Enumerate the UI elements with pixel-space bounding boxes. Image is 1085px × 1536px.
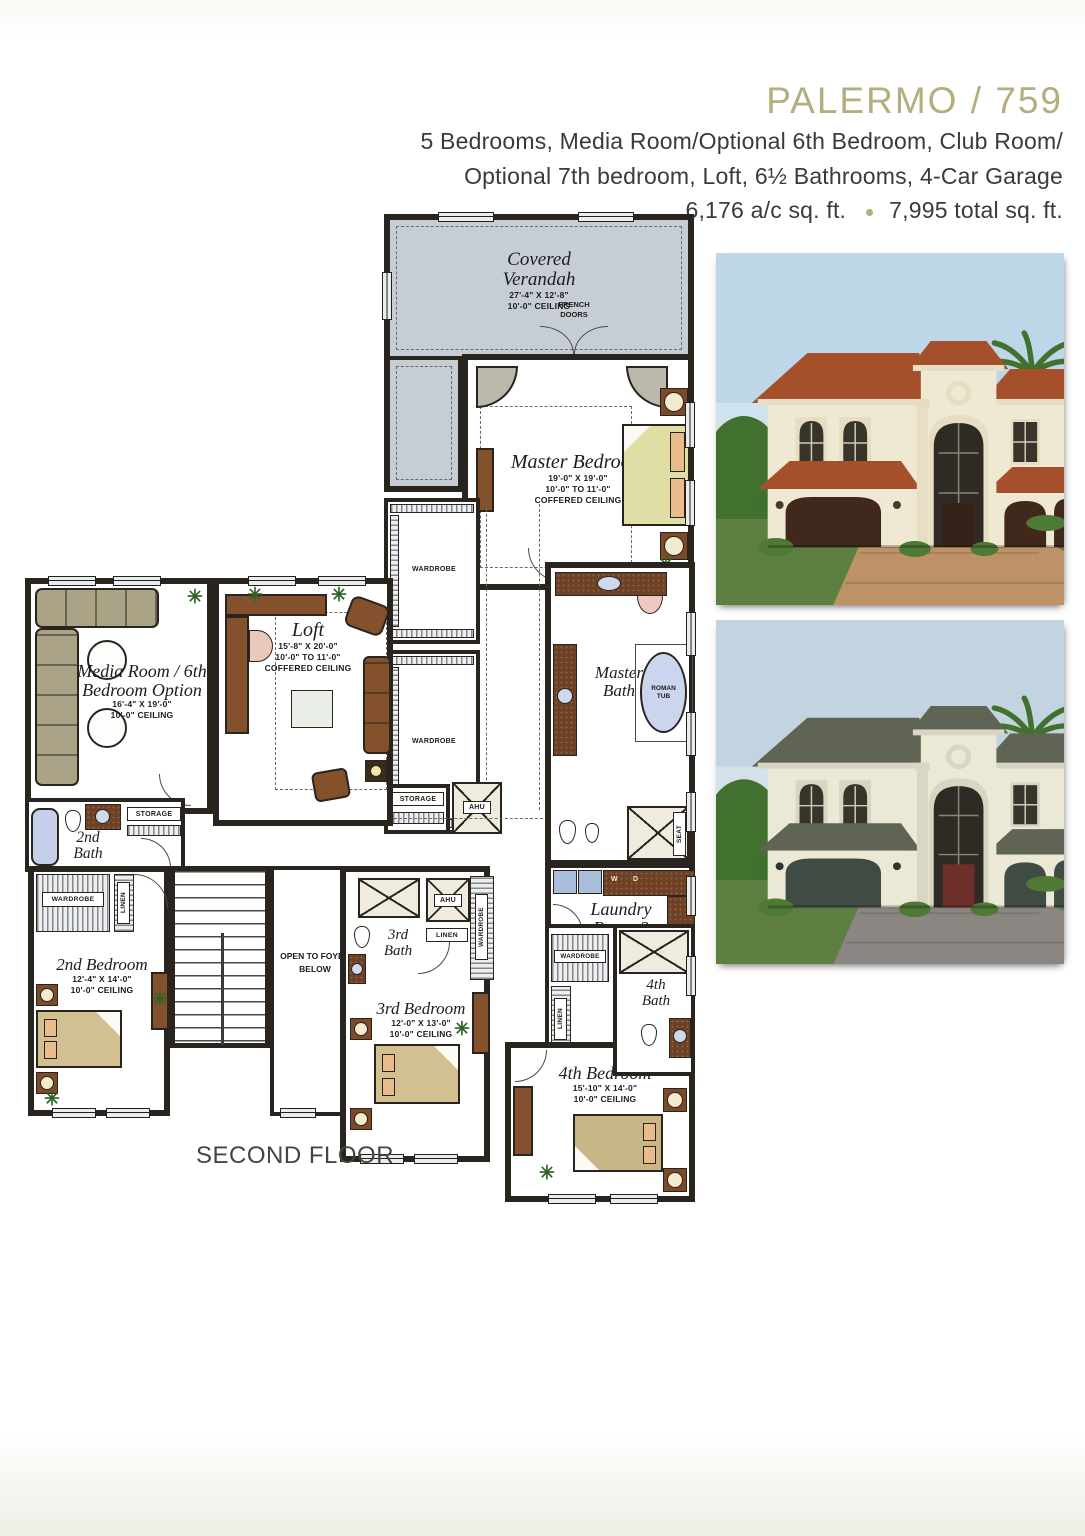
nightstand [36, 984, 58, 1006]
coffee-table [291, 690, 333, 728]
hatch [127, 825, 181, 836]
bath-2-name-1: 2nd [57, 830, 119, 846]
house-illustration [716, 253, 1064, 605]
verandah-name-2: Verandah [444, 270, 634, 290]
nightstand [350, 1108, 372, 1130]
lamp [370, 765, 382, 777]
plant-icon: ✳ [454, 1020, 470, 1039]
bath-2-label: 2nd Bath [57, 830, 119, 862]
window [686, 876, 696, 916]
pillow [670, 478, 685, 518]
bedroom-2-name: 2nd Bedroom [40, 956, 164, 974]
bedroom-3-name: 3rd Bedroom [362, 1000, 480, 1018]
nightstand [660, 388, 688, 416]
window [318, 576, 366, 586]
chair [311, 767, 352, 803]
window [686, 956, 696, 996]
ahu-unit: AHU [452, 782, 502, 834]
window [578, 212, 634, 222]
french-doors-line1: FRENCH [534, 300, 614, 310]
roman-tub-label-2: TUB [651, 693, 676, 701]
room-covered-verandah-wing [384, 360, 464, 492]
shower [358, 878, 420, 918]
pillow [382, 1078, 395, 1096]
wardrobe-label: WARDROBE [400, 562, 468, 576]
door-arc [418, 942, 450, 974]
bed [374, 1044, 460, 1104]
window [106, 1108, 150, 1118]
french-doors-label: FRENCH DOORS [534, 300, 614, 320]
closet-storage: STORAGE [384, 784, 450, 834]
bed-fold [624, 426, 650, 452]
hallway-dash [486, 504, 540, 810]
console [225, 616, 249, 734]
wardrobe-label: WARDROBE [42, 892, 104, 907]
door-arc [134, 874, 168, 908]
room-media: Media Room / 6th Bedroom Option 16'-4" X… [25, 578, 213, 814]
media-room-dims: 16'-4" X 19'-0" [75, 699, 209, 710]
bed-fold [434, 1046, 458, 1070]
loft-name: Loft [253, 620, 363, 641]
bed [573, 1114, 663, 1172]
bed-fold [575, 1146, 599, 1170]
shower [619, 930, 689, 974]
washer [553, 870, 577, 894]
master-bed [622, 424, 690, 526]
hatch [390, 629, 474, 638]
verandah-wing-dash [396, 366, 452, 480]
master-corner-fan-left [476, 366, 518, 408]
nightstand [663, 1088, 687, 1112]
sink [351, 963, 363, 975]
console [225, 594, 327, 616]
house-illustration [716, 620, 1064, 964]
seat-label: SEAT [673, 812, 686, 856]
loft-dims: 15'-8" X 20'-0" [253, 641, 363, 652]
staircase [170, 866, 270, 1048]
sink [95, 809, 110, 824]
plant-icon: ✳ [247, 586, 263, 605]
linen-label: LINEN [554, 998, 567, 1040]
bed-fold [96, 1012, 120, 1036]
plant-icon: ✳ [539, 1164, 555, 1183]
plan-specs-line-2: Optional 7th bedroom, Loft, 6½ Bathrooms… [464, 163, 1063, 190]
bathtub [31, 808, 59, 866]
window [113, 576, 161, 586]
ahu-unit: AHU [426, 878, 470, 922]
sofa [363, 656, 391, 754]
toilet [354, 926, 370, 948]
bedroom-4-dims: 15'-10" X 14'-0" [535, 1083, 675, 1094]
bedroom-2-label: 2nd Bedroom 12'-4" X 14'-0" 10'-0" CEILI… [40, 956, 164, 996]
loft-label: Loft 15'-8" X 20'-0" 10'-0" TO 11'-0" CO… [253, 620, 363, 674]
laundry-counter [603, 870, 695, 896]
storage-label: STORAGE [127, 807, 181, 821]
pillow [382, 1054, 395, 1072]
area-total: 7,995 total sq. ft. [889, 197, 1063, 224]
media-room-name-2: Bedroom Option [75, 681, 209, 700]
rendering-photo-contemporary [716, 620, 1064, 964]
makeup-basin [637, 596, 663, 614]
nightstand [663, 1168, 687, 1192]
window [610, 1194, 658, 1204]
area-ac: 6,176 a/c sq. ft. [685, 197, 846, 224]
window [382, 272, 392, 320]
closet-block-bedroom-4: WARDROBE LINEN [545, 924, 617, 1058]
bidet [585, 823, 599, 843]
stair-rail [221, 933, 224, 1045]
plant-icon: ✳ [152, 990, 168, 1009]
plan-specs-line-1: 5 Bedrooms, Media Room/Optional 6th Bedr… [420, 128, 1063, 155]
bath-2-name-2: Bath [57, 846, 119, 862]
window [686, 792, 696, 832]
hatch [390, 504, 474, 513]
plant-icon: ✳ [331, 586, 347, 605]
sectional-sofa [35, 588, 159, 628]
bedroom-2-dims: 12'-4" X 14'-0" [40, 974, 164, 985]
french-doors-line2: DOORS [534, 310, 614, 320]
room-master-bath: Master Bath ROMAN TUB SEAT [545, 562, 695, 866]
floor-plan: Covered Verandah 27'-4" X 12'-8" 10'-0" … [18, 212, 702, 1217]
lamp-table [365, 760, 387, 782]
room-bath-4: 4th Bath [613, 924, 695, 1076]
pillow [670, 432, 685, 472]
window [685, 480, 695, 526]
plan-title: PALERMO / 759 [766, 80, 1063, 122]
plant-icon: ✳ [44, 1090, 60, 1109]
roman-tub-label-1: ROMAN [651, 685, 676, 693]
closet-wardrobe-1: WARDROBE [384, 498, 480, 644]
window [248, 576, 296, 586]
door-arc [141, 838, 171, 868]
bath-4-label: 4th Bath [627, 978, 685, 1009]
linen-label: LINEN [426, 928, 468, 942]
toilet [559, 820, 576, 844]
sink [597, 576, 621, 591]
laundry-name-1: Laundry [567, 900, 675, 919]
media-room-name-1: Media Room / 6th [75, 662, 209, 681]
pillow [643, 1146, 656, 1164]
toilet [641, 1024, 657, 1046]
pillow [44, 1041, 57, 1059]
sink [557, 688, 573, 704]
media-room-label: Media Room / 6th Bedroom Option 16'-4" X… [75, 662, 209, 722]
window [686, 612, 696, 656]
loft-ceiling2: COFFERED CEILING [253, 663, 363, 674]
linen-label: LINEN [117, 882, 130, 924]
rendering-photo-mediterranean [716, 253, 1064, 605]
verandah-name-1: Covered [444, 250, 634, 270]
wardrobe-label: WARDROBE [475, 894, 488, 960]
sink [673, 1029, 687, 1043]
pillow [44, 1019, 57, 1037]
window [414, 1154, 458, 1164]
bed [36, 1010, 122, 1068]
window [52, 1108, 96, 1118]
plan-area-line: 6,176 a/c sq. ft. 7,995 total sq. ft. [685, 197, 1063, 224]
room-bedroom-2: WARDROBE LINEN 2nd Bedroom 12'-4" X 14'-… [28, 866, 170, 1116]
dresser [472, 992, 490, 1054]
ahu-label: AHU [434, 894, 462, 907]
window [280, 1108, 316, 1118]
verandah-dims: 27'-4" X 12'-8" [444, 290, 634, 301]
floor-caption: SECOND FLOOR [196, 1142, 416, 1170]
media-room-ceiling: 10'-0" CEILING [75, 710, 209, 721]
bath-4-name-1: 4th [627, 978, 685, 994]
window [686, 712, 696, 756]
room-bath-2: 2nd Bath STORAGE [25, 798, 185, 872]
storage-label: STORAGE [392, 792, 444, 806]
nightstand [350, 1018, 372, 1040]
room-bedroom-3: AHU LINEN WARDROBE 3rd Bath 3rd Bedroom … [340, 866, 490, 1162]
wardrobe-label: WARDROBE [554, 950, 606, 963]
plant-icon: ✳ [187, 588, 203, 607]
room-loft: Loft 15'-8" X 20'-0" 10'-0" TO 11'-0" CO… [213, 578, 393, 826]
window [685, 402, 695, 448]
sectional-sofa [35, 628, 79, 786]
window [48, 576, 96, 586]
wardrobe-label: WARDROBE [400, 734, 468, 748]
hatch [390, 656, 474, 665]
dresser [513, 1086, 533, 1156]
bedroom-2-ceiling: 10'-0" CEILING [40, 985, 164, 996]
loft-ceiling: 10'-0" TO 11'-0" [253, 652, 363, 663]
dryer [578, 870, 602, 894]
dryer-label: D [633, 876, 638, 883]
bullet-icon [866, 209, 873, 216]
roman-tub: ROMAN TUB [640, 652, 687, 733]
page-background: { "header": { "title": "PALERMO / 759", … [0, 0, 1085, 1536]
window [548, 1194, 596, 1204]
window [438, 212, 494, 222]
tub-alcove: ROMAN TUB [635, 644, 693, 742]
bedroom-4-ceiling: 10'-0" CEILING [535, 1094, 675, 1105]
bath-4-name-2: Bath [627, 994, 685, 1010]
washer-label: W [611, 876, 618, 883]
pillow [643, 1123, 656, 1141]
ahu-label: AHU [463, 801, 491, 814]
